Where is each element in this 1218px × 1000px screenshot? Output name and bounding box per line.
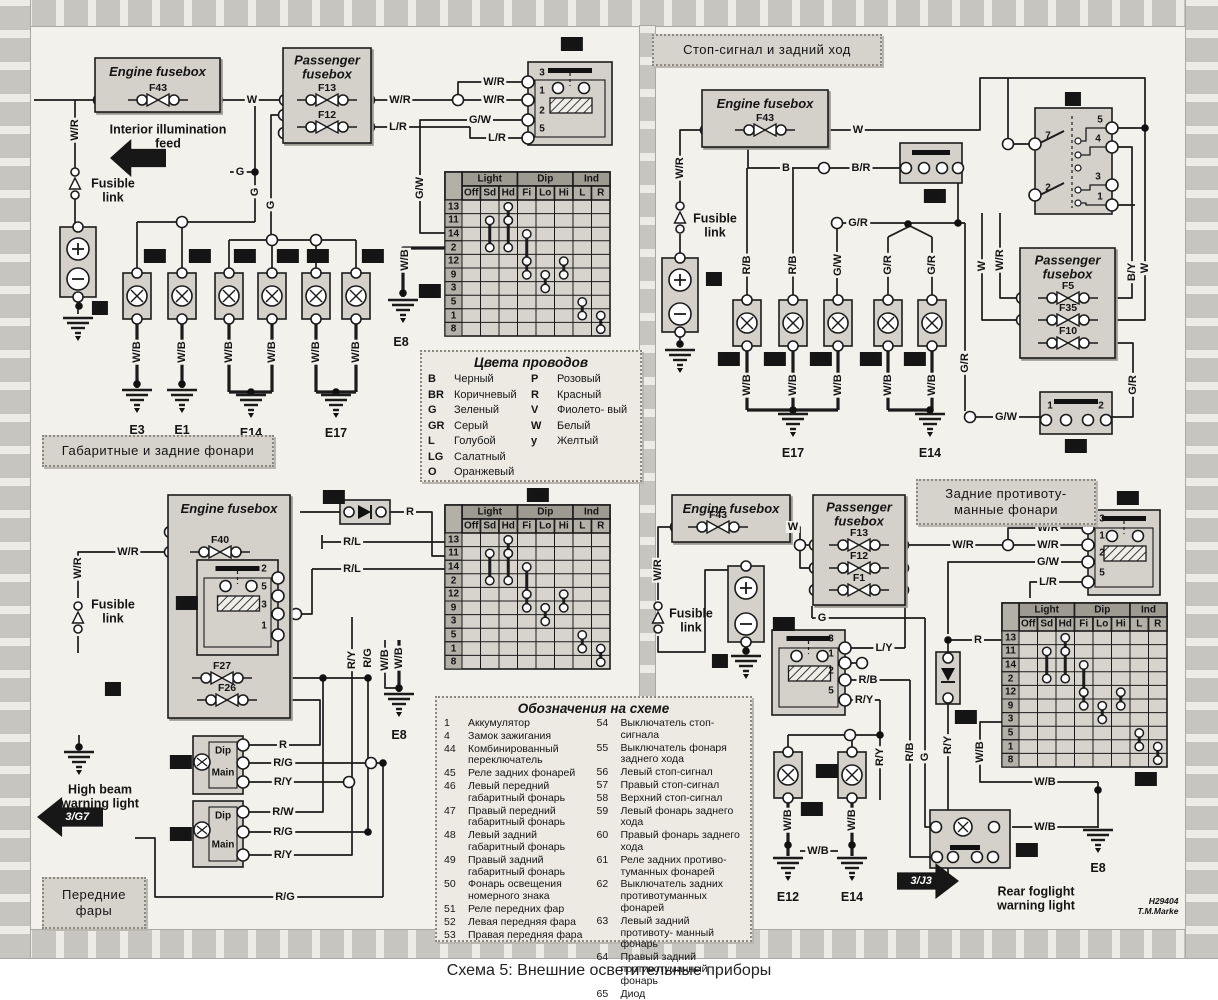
table-row-header xyxy=(445,655,462,669)
connector-circle xyxy=(857,658,868,669)
table-link-contact xyxy=(578,631,586,639)
table-row-header xyxy=(1002,713,1019,727)
switch-contact xyxy=(919,163,930,174)
junction-dot xyxy=(876,731,884,739)
relay-coil xyxy=(550,98,592,113)
connector-circle xyxy=(783,793,793,803)
table-link-contact xyxy=(486,549,494,557)
relay-bar xyxy=(1102,516,1146,521)
wire xyxy=(302,569,312,614)
fuse-end xyxy=(870,563,880,573)
connector-circle xyxy=(742,341,752,351)
table-link-contact xyxy=(504,203,512,211)
switch xyxy=(1040,392,1112,434)
switch-contact xyxy=(932,852,943,863)
ground-symbol xyxy=(134,408,140,413)
ground-symbol xyxy=(333,413,339,418)
wire xyxy=(982,213,1022,320)
fusible-link xyxy=(73,612,84,623)
fuse-end xyxy=(1079,293,1089,303)
color-legend-entry: VФиолето- вый xyxy=(531,403,634,419)
relay-coil xyxy=(218,596,260,611)
ignition-pin xyxy=(1106,141,1118,153)
relay-bar xyxy=(216,566,260,571)
table-link-contact xyxy=(1154,756,1162,764)
table-link-contact xyxy=(486,216,494,224)
ground-symbol xyxy=(677,368,683,373)
table-link-contact xyxy=(1135,729,1143,737)
wire xyxy=(386,512,445,556)
relay-pin xyxy=(272,590,284,602)
fuse-end xyxy=(231,547,241,557)
table-row-header xyxy=(445,282,462,296)
wire xyxy=(458,82,528,94)
designation-entry: 55Выключатель фонаря заднего хода xyxy=(597,743,744,767)
fusible-link xyxy=(676,225,684,233)
connector-circle xyxy=(351,268,361,278)
relay-pin xyxy=(839,674,851,686)
ignition-contact xyxy=(1075,152,1081,158)
connector-circle xyxy=(833,295,843,305)
table-link-contact xyxy=(504,243,512,251)
wire xyxy=(470,127,528,138)
relay-bar xyxy=(787,636,831,641)
table-link-contact xyxy=(1098,715,1106,723)
table-row-header xyxy=(445,533,462,547)
junction-dot xyxy=(742,647,750,655)
table-row-header xyxy=(445,295,462,309)
ignition-pin xyxy=(1029,138,1041,150)
headlamp-pin xyxy=(237,757,249,769)
table-col-header xyxy=(518,186,537,200)
table-group-header xyxy=(1019,603,1075,617)
color-legend-entry: RКрасный xyxy=(531,388,634,404)
connector-circle xyxy=(675,327,685,337)
connector-circle xyxy=(344,507,354,517)
table-col-header xyxy=(462,186,481,200)
connector-circle xyxy=(819,163,830,174)
fusebox xyxy=(283,48,371,143)
relay-coil xyxy=(1104,546,1146,561)
connector-circle xyxy=(366,758,377,769)
color-legend-entry: BЧерный xyxy=(428,372,531,388)
switch-contact xyxy=(1041,415,1052,426)
table-row-header xyxy=(445,214,462,228)
color-legend-entry: LGСалатный xyxy=(428,450,531,466)
table-col-header xyxy=(1056,617,1075,631)
switch-contact xyxy=(972,852,983,863)
table-col-header xyxy=(536,519,555,533)
connector-circle xyxy=(351,314,361,324)
relay-pin xyxy=(839,657,851,669)
relay-pin xyxy=(272,572,284,584)
switch-contact xyxy=(953,163,964,174)
table-link-contact xyxy=(486,243,494,251)
wire xyxy=(385,640,399,688)
relay-pin xyxy=(272,629,284,641)
designation-entry: 60Правый фонарь заднего хода xyxy=(597,830,744,854)
connector-circle xyxy=(943,653,953,663)
table-col-header xyxy=(573,186,592,200)
wire xyxy=(748,145,818,168)
fuse-end xyxy=(199,547,209,557)
table-link-contact xyxy=(597,658,605,666)
relay-contact xyxy=(246,581,257,592)
ground-symbol xyxy=(790,432,796,437)
table-corner xyxy=(445,505,462,533)
wire xyxy=(78,552,172,598)
table-row-header xyxy=(1002,658,1019,672)
wire xyxy=(1113,128,1145,320)
junction-dot xyxy=(75,302,83,310)
table-row-header xyxy=(445,200,462,214)
connector-circle xyxy=(376,507,386,517)
relay-pin xyxy=(1082,556,1094,568)
wire xyxy=(1008,78,1031,144)
switch-contact xyxy=(937,163,948,174)
color-legend-entry: yЖелтый xyxy=(531,434,634,450)
relay-contact xyxy=(579,83,590,94)
junction-dot xyxy=(251,168,259,176)
junction-dot xyxy=(789,406,797,414)
connector-circle xyxy=(224,314,234,324)
ground-symbol xyxy=(76,770,82,775)
relay-pin xyxy=(522,114,534,126)
switch-contact xyxy=(1101,415,1112,426)
table-row-header xyxy=(445,615,462,629)
fuse-end xyxy=(238,695,248,705)
fuse-end xyxy=(1047,293,1057,303)
fusible-link xyxy=(71,191,79,199)
table-row-header xyxy=(445,601,462,615)
switch-contact xyxy=(1061,415,1072,426)
table-link-contact xyxy=(504,549,512,557)
switch-bar xyxy=(912,150,950,155)
junction-dot xyxy=(75,743,83,751)
table-row-header xyxy=(1002,685,1019,699)
color-legend-entry: GRСерый xyxy=(428,419,531,435)
table-row-header xyxy=(445,574,462,588)
ground-symbol xyxy=(1095,848,1101,853)
relay-pin xyxy=(1082,576,1094,588)
fuse-end xyxy=(838,563,848,573)
wire xyxy=(680,130,702,202)
ground-symbol xyxy=(927,432,933,437)
relay-pin xyxy=(522,132,534,144)
junction-dot xyxy=(944,636,952,644)
connector-circle xyxy=(927,295,937,305)
fusible-link xyxy=(653,612,664,623)
switch-contact xyxy=(989,822,1000,833)
junction-dot xyxy=(1094,786,1102,794)
designation-entry: 44Комбинированный переключатель xyxy=(444,744,591,768)
connector-circle xyxy=(883,341,893,351)
fusebox xyxy=(95,58,220,112)
connector-circle xyxy=(847,747,857,757)
wire xyxy=(925,618,930,827)
connector-circle xyxy=(311,235,322,246)
junction-dot xyxy=(251,96,259,104)
fuse-end xyxy=(1047,315,1057,325)
ground-symbol xyxy=(743,674,749,679)
connector-circle xyxy=(177,268,187,278)
connector-circle xyxy=(267,235,278,246)
fuse-end xyxy=(1079,315,1089,325)
junction-dot xyxy=(178,380,186,388)
wire xyxy=(1008,528,1088,539)
connector-circle xyxy=(132,268,142,278)
relay-contact xyxy=(220,581,231,592)
connector-circle xyxy=(788,341,798,351)
headlamp-pin xyxy=(237,776,249,788)
connector-circle xyxy=(741,637,751,647)
table-link-contact xyxy=(597,311,605,319)
table-corner xyxy=(445,172,462,200)
fuse-end xyxy=(870,540,880,550)
table-group-header xyxy=(518,172,574,186)
table-row-header xyxy=(445,309,462,323)
fusebox xyxy=(702,90,828,147)
fuse-end xyxy=(306,122,316,132)
connector-circle xyxy=(795,540,806,551)
table-col-header xyxy=(573,519,592,533)
ground-symbol xyxy=(785,876,791,881)
table-row-header xyxy=(445,268,462,282)
wire-color-legend: Цвета проводов BЧерныйBRКоричневыйGЗелен… xyxy=(420,350,642,482)
table-link-contact xyxy=(578,644,586,652)
switch-bar xyxy=(950,845,980,850)
fuse-end xyxy=(306,95,316,105)
table-link-contact xyxy=(504,216,512,224)
connector-circle xyxy=(783,747,793,757)
switch-contact xyxy=(931,822,942,833)
wire xyxy=(910,680,932,857)
table-link-contact xyxy=(504,576,512,584)
junction-dot xyxy=(676,340,684,348)
connector-circle xyxy=(267,314,277,324)
junction-dot xyxy=(926,406,934,414)
ignition-contact xyxy=(1075,138,1081,144)
table-link-contact xyxy=(486,576,494,584)
table-col-header xyxy=(1093,617,1112,631)
ignition-pin xyxy=(1106,199,1118,211)
relay-contact xyxy=(1133,531,1144,542)
connector-circle xyxy=(311,314,321,324)
table-link-contact xyxy=(523,590,531,598)
fuse-end xyxy=(206,695,216,705)
switch-contact xyxy=(901,163,912,174)
designation-entry: 61Реле задних противо- туманных фонарей xyxy=(597,855,744,879)
wire xyxy=(888,226,910,237)
junction-dot xyxy=(319,674,327,682)
table-link-contact xyxy=(1061,634,1069,642)
fuse-end xyxy=(169,95,179,105)
table-col-header xyxy=(518,519,537,533)
fuse-end xyxy=(233,673,243,683)
table-link-contact xyxy=(523,271,531,279)
relay-pin xyxy=(522,94,534,106)
designations-legend: Обозначения на схеме 1Аккумулятор4Замок … xyxy=(435,696,752,942)
connector-circle xyxy=(675,253,685,263)
connector-circle xyxy=(73,222,83,232)
table-row-header xyxy=(1002,740,1019,754)
table-col-header xyxy=(536,186,555,200)
table-row-header xyxy=(445,227,462,241)
color-legend-entry: BRКоричневый xyxy=(428,388,531,404)
table-link-contact xyxy=(523,230,531,238)
relay-pin xyxy=(839,694,851,706)
junction-dot xyxy=(904,220,912,228)
table-link-contact xyxy=(504,536,512,544)
wire xyxy=(1030,582,1088,598)
table-link-contact xyxy=(1061,647,1069,655)
table-col-header xyxy=(555,519,574,533)
table-col-header xyxy=(499,186,518,200)
fusible-link xyxy=(71,168,79,176)
relay-contact xyxy=(791,651,802,662)
designation-entry: 63Левый задний противоту- манный фонарь xyxy=(597,916,744,951)
table-link-contact xyxy=(541,284,549,292)
junction-dot xyxy=(848,841,856,849)
wire xyxy=(1000,213,1022,298)
fusible-link xyxy=(654,602,662,610)
connector-circle xyxy=(788,295,798,305)
fusible-link xyxy=(675,212,686,223)
connector-circle xyxy=(177,314,187,324)
table-link-contact xyxy=(560,257,568,265)
table-group-header xyxy=(1130,603,1167,617)
table-link-contact xyxy=(597,644,605,652)
table-col-header xyxy=(592,186,611,200)
headlamp-pin xyxy=(237,739,249,751)
table-row-header xyxy=(445,560,462,574)
ignition-contact xyxy=(1075,165,1081,171)
connector-circle xyxy=(927,341,937,351)
fusible-link xyxy=(74,625,82,633)
designation-entry: 4Замок зажигания xyxy=(444,731,591,743)
fuse-end xyxy=(870,585,880,595)
table-row-header xyxy=(1002,699,1019,713)
junction-dot xyxy=(399,289,407,297)
table-link-contact xyxy=(560,604,568,612)
designation-entry: 47Правый передний габаритный фонарь xyxy=(444,806,591,830)
relay-pin xyxy=(272,608,284,620)
table-row-header xyxy=(445,322,462,336)
table-link-contact xyxy=(541,604,549,612)
connector-circle xyxy=(1003,139,1014,150)
table-row-header xyxy=(1002,631,1019,645)
ground-symbol xyxy=(75,336,81,341)
table-row-header xyxy=(445,587,462,601)
table-col-header xyxy=(1075,617,1094,631)
table-link-contact xyxy=(1117,702,1125,710)
table-link-contact xyxy=(541,617,549,625)
ground-symbol xyxy=(849,876,855,881)
ignition-switch xyxy=(1035,108,1112,214)
switch-contact xyxy=(1083,415,1094,426)
ignition-contact xyxy=(1075,187,1081,193)
relay-pin xyxy=(1082,522,1094,534)
table-col-header xyxy=(1038,617,1057,631)
relay-contact xyxy=(817,651,828,662)
color-legend-entry: LГолубой xyxy=(428,434,531,450)
connector-circle xyxy=(741,561,751,571)
table-row-header xyxy=(1002,753,1019,767)
table-link-contact xyxy=(1154,742,1162,750)
connector-circle xyxy=(177,217,188,228)
connector-circle xyxy=(742,295,752,305)
connector-circle xyxy=(943,693,953,703)
relay-pin xyxy=(839,642,851,654)
color-legend-entry: GЗеленый xyxy=(428,403,531,419)
table-link-contact xyxy=(1080,688,1088,696)
table-link-contact xyxy=(1098,702,1106,710)
table-col-header xyxy=(481,186,500,200)
fusible-link xyxy=(654,625,662,633)
table-col-header xyxy=(462,519,481,533)
ignition-pin xyxy=(1106,179,1118,191)
fusebox xyxy=(672,495,790,542)
table-row-header xyxy=(1002,672,1019,686)
designation-entry: 46Левый передний габаритный фонарь xyxy=(444,781,591,805)
table-link-contact xyxy=(1043,647,1051,655)
connector-circle xyxy=(132,314,142,324)
designations-title: Обозначения на схеме xyxy=(437,701,750,716)
designation-entry: 49Правый задний габаритный фонарь xyxy=(444,855,591,879)
ground-symbol xyxy=(396,712,402,717)
connector-circle xyxy=(73,292,83,302)
fuse-end xyxy=(1047,338,1057,348)
table-group-header xyxy=(573,505,610,519)
table-row-header xyxy=(445,628,462,642)
fuse-end xyxy=(338,122,348,132)
designation-entry: 65Диод xyxy=(597,989,744,1000)
table-link-contact xyxy=(578,298,586,306)
connector-circle xyxy=(847,793,857,803)
connector-circle xyxy=(1003,540,1014,551)
wire xyxy=(403,248,445,297)
table-link-contact xyxy=(523,563,531,571)
wire xyxy=(910,226,932,237)
connector-circle xyxy=(883,295,893,305)
junction-dot xyxy=(364,828,372,836)
fuse-end xyxy=(838,540,848,550)
designation-entry: 56Левый стоп-сигнал xyxy=(597,767,744,779)
wiring-diagram-page: Engine fuseboxF43Passenger fuseboxF13F12… xyxy=(0,0,1218,1000)
relay-bar xyxy=(548,68,592,73)
headlamp-pin xyxy=(237,826,249,838)
fuse-end xyxy=(697,522,707,532)
fuse-end xyxy=(1079,338,1089,348)
table-link-contact xyxy=(1061,674,1069,682)
junction-dot xyxy=(395,684,403,692)
relay-pin xyxy=(522,76,534,88)
table-col-header xyxy=(481,519,500,533)
wire xyxy=(1113,147,1132,298)
table-link-contact xyxy=(1135,742,1143,750)
wire xyxy=(135,838,383,897)
table-group-header xyxy=(462,172,518,186)
designation-entry: 62Выключатель задних противотуманных фон… xyxy=(597,879,744,914)
fusible-link xyxy=(70,178,81,189)
fuse-end xyxy=(137,95,147,105)
table-group-header xyxy=(573,172,610,186)
table-row-header xyxy=(445,547,462,561)
fuse-end xyxy=(338,95,348,105)
designation-entry: 50Фонарь освещения номерного знака xyxy=(444,879,591,903)
headlamp-pin xyxy=(237,849,249,861)
table-col-header xyxy=(499,519,518,533)
